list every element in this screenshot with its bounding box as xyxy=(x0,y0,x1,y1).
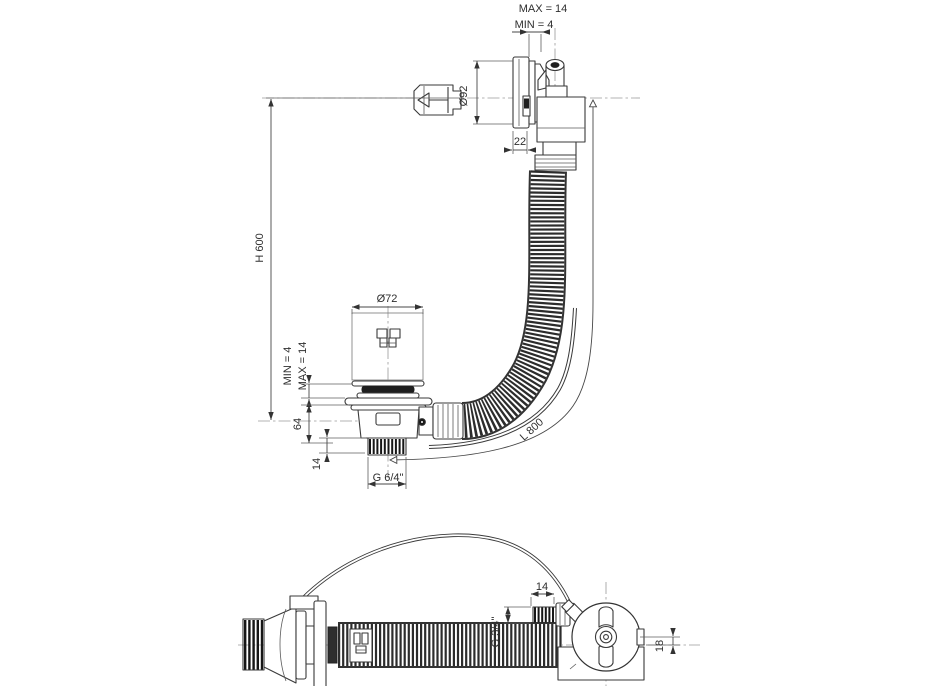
drain-assembly xyxy=(345,313,463,455)
label-thread-height: 14 xyxy=(311,458,323,470)
hose-window-detail xyxy=(350,629,372,662)
side-drain-thread xyxy=(243,619,264,670)
label-overflow-thread: G 3/4" xyxy=(490,617,502,648)
wing-screw xyxy=(377,329,400,347)
dim-drain-height xyxy=(301,405,349,443)
dim-thread-height xyxy=(319,429,366,462)
drain-plug xyxy=(352,381,424,398)
dim-face-diameter xyxy=(473,61,513,124)
set-screw-center xyxy=(421,421,423,423)
flexible-hose xyxy=(462,171,548,421)
overflow-head xyxy=(513,57,585,170)
dim-overflow-thread-length xyxy=(531,594,554,606)
side-drain xyxy=(243,596,337,686)
side-cable xyxy=(303,535,571,606)
cable-nipple xyxy=(538,60,564,91)
label-drain-thread: G 6/4" xyxy=(373,472,404,484)
label-face-offset: 22 xyxy=(514,136,526,148)
label-plug-max: MAX = 14 xyxy=(297,342,309,391)
hose-nut xyxy=(433,403,463,439)
label-install-height: H 600 xyxy=(254,233,266,262)
label-panel-max: MAX = 14 xyxy=(519,3,568,15)
label-drain-height: 64 xyxy=(292,418,304,430)
side-view: 14 G 3/4" 18 xyxy=(238,535,700,686)
label-plug-min: MIN = 4 xyxy=(282,347,294,386)
wing-nut xyxy=(596,607,617,667)
overflow-knob xyxy=(414,85,461,115)
label-panel-min: MIN = 4 xyxy=(515,19,554,31)
drain-thread xyxy=(368,438,406,455)
label-overflow-offset: 18 xyxy=(654,640,666,652)
gasket xyxy=(328,627,337,663)
technical-drawing: MAX = 14 MIN = 4 Ø92 22 H 600 Ø72 MIN = … xyxy=(0,0,928,686)
label-plug-diameter: Ø72 xyxy=(377,293,398,305)
dim-panel-minmax xyxy=(512,32,550,57)
overflow-thread xyxy=(533,607,556,623)
drawing-canvas: MAX = 14 MIN = 4 Ø92 22 H 600 Ø72 MIN = … xyxy=(0,0,928,686)
main-view: MAX = 14 MIN = 4 Ø92 22 H 600 Ø72 MIN = … xyxy=(254,3,640,489)
dim-install-height xyxy=(266,98,460,420)
label-face-diameter: Ø92 xyxy=(458,86,470,107)
label-overflow-thread-length: 14 xyxy=(536,581,548,593)
dim-overflow-thread xyxy=(504,607,531,623)
